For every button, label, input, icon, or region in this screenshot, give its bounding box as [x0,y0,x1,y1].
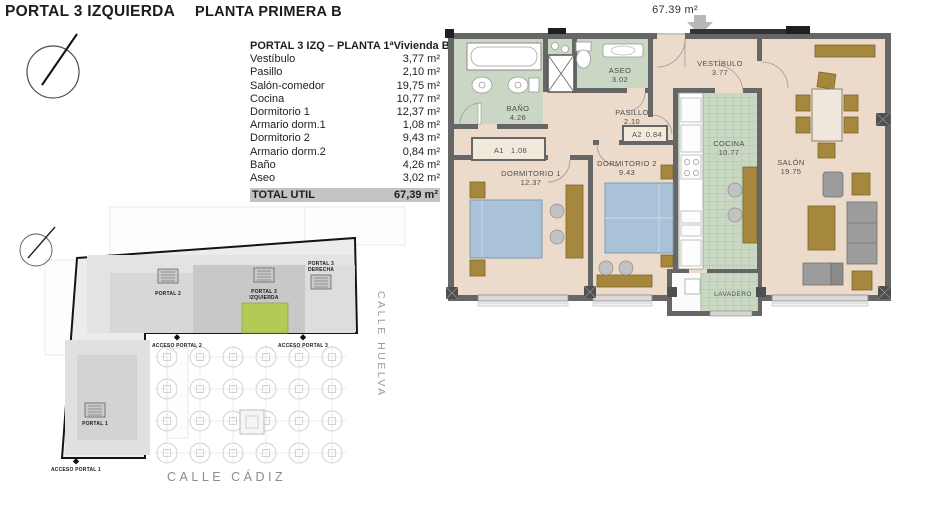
row-label: Salón-comedor [250,80,325,93]
label-acceso-3: ACCESO PORTAL 3 [278,343,328,349]
table-total-row: TOTAL UTIL 67,39 m² [250,188,440,202]
area-table: PORTAL 3 IZQ – PLANTA 1ª Vivienda B Vest… [250,40,440,202]
table-header-left: PORTAL 3 IZQ – PLANTA 1ª [250,40,394,53]
row-label: Aseo [250,172,275,185]
bathtub [467,43,541,70]
label-cocina: COCINA [713,139,745,148]
page-title: PORTAL 3 IZQUIERDA [5,3,175,21]
kitchen-counter [679,93,703,269]
label-portal-2: PORTAL 2 [155,291,181,297]
label-vestibulo: VESTÍBULO [697,59,743,68]
street-calle-cadiz: CALLE CÁDIZ [167,470,286,484]
label-portal-3-der-2: DERECHA [308,267,334,273]
table-row: Armario dorm.11,08 m² [250,119,440,132]
tv-unit [803,263,843,285]
sideboard [815,45,875,57]
compass-icon [25,28,87,104]
table-row: Dormitorio 29,43 m² [250,132,440,145]
bed-dorm1 [470,200,542,258]
side-table [852,173,870,195]
row-label: Armario dorm.2 [250,146,326,159]
row-value: 1,08 m² [403,119,440,132]
closet-a1 [472,138,545,160]
label-salon-area: 19.75 [781,167,802,176]
sofa [847,202,877,264]
row-value: 3,77 m² [403,53,440,66]
bench-dorm2 [597,275,652,287]
row-label: Vestíbulo [250,53,295,66]
row-label: Pasillo [250,66,282,79]
plan-subtitle: PLANTA PRIMERA B [195,4,342,20]
row-label: Armario dorm.1 [250,119,326,132]
total-value: 67,39 m² [394,188,438,202]
label-salon: SALÓN [777,158,804,167]
label-portal-3-izq-2: IZQUIERDA [249,295,278,301]
row-value: 9,43 m² [403,132,440,145]
table-header-right: Vivienda B [394,40,450,53]
table-row: Vestíbulo3,77 m² [250,53,440,66]
row-label: Dormitorio 1 [250,106,310,119]
table-row: Cocina10,77 m² [250,93,440,106]
area-table-header: PORTAL 3 IZQ – PLANTA 1ª Vivienda B [250,40,440,53]
aseo-sink [603,44,643,57]
table-row: Salón-comedor19,75 m² [250,80,440,93]
toilet [576,42,591,68]
kitchen-island [743,167,757,243]
row-value: 19,75 m² [397,80,440,93]
wardrobe-dorm1 [566,185,583,258]
label-pasillo: PASILLO [615,108,649,117]
label-a2-area: 0.84 [646,130,662,139]
row-value: 3,02 m² [403,172,440,185]
row-value: 2,10 m² [403,66,440,79]
label-a2: A2 [632,130,642,139]
highlighted-unit [242,303,288,333]
table-row: Armario dorm.20,84 m² [250,146,440,159]
label-pasillo-area: 2.10 [624,117,640,126]
elevator-shaft [548,55,574,92]
label-vestibulo-area: 3.77 [712,68,728,77]
table-row: Pasillo2,10 m² [250,66,440,79]
row-value: 12,37 m² [397,106,440,119]
label-aseo-area: 3.02 [612,75,628,84]
apartment-floor-plan: BAÑO 4.26 ASEO 3.02 VESTÍBULO 3.77 PASIL… [445,25,900,325]
label-bano-area: 4.26 [510,113,526,122]
label-dorm1: DORMITORIO 1 [501,169,561,178]
site-plan: PORTAL 2 PORTAL 3 IZQUIERDA PORTAL 3 DER… [15,205,410,495]
label-bano: BAÑO [507,104,530,113]
total-label: TOTAL UTIL [252,188,315,202]
label-a1: A1 [494,146,504,155]
coffee-table [808,206,835,250]
label-cocina-area: 10.77 [719,148,740,157]
row-label: Cocina [250,93,284,106]
row-value: 0,84 m² [403,146,440,159]
row-value: 10,77 m² [397,93,440,106]
label-aseo: ASEO [609,66,631,75]
label-acceso-1: ACCESO PORTAL 1 [51,467,101,473]
column-grid [155,345,347,463]
label-lavadero: LAVADERO [714,291,752,298]
label-dorm1-area: 12.37 [521,178,542,187]
label-a1-area: 1.08 [511,146,527,155]
label-acceso-2: ACCESO PORTAL 2 [152,343,202,349]
salon-cabinet [852,271,872,290]
street-calle-huelva: CALLE HUELVA [375,291,387,398]
table-row: Aseo3,02 m² [250,172,440,185]
bed-dorm2 [605,183,673,253]
label-portal-1: PORTAL 1 [82,421,108,427]
table-row: Dormitorio 112,37 m² [250,106,440,119]
row-value: 4,26 m² [403,159,440,172]
label-dorm2-area: 9.43 [619,168,635,177]
label-dorm2: DORMITORIO 2 [597,159,657,168]
row-label: Baño [250,159,276,172]
armchair [823,172,843,197]
row-label: Dormitorio 2 [250,132,310,145]
table-row: Baño4,26 m² [250,159,440,172]
